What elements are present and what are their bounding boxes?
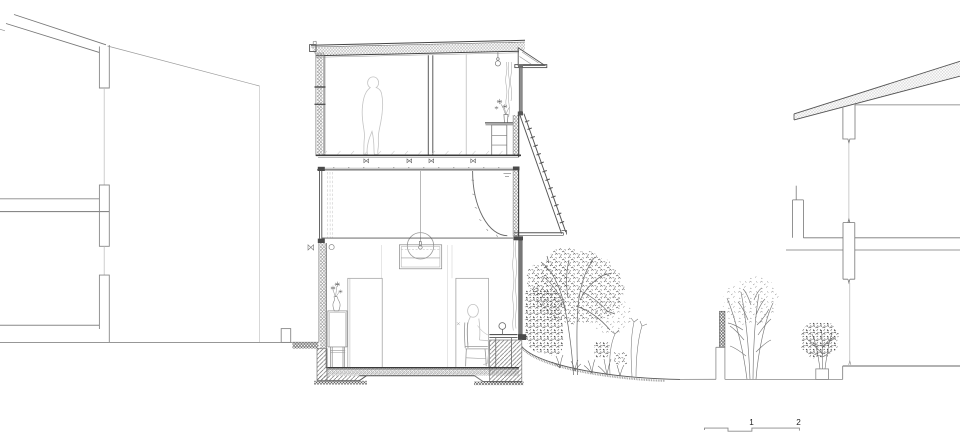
svg-text:2: 2 — [796, 418, 801, 427]
svg-text:1: 1 — [749, 418, 754, 427]
